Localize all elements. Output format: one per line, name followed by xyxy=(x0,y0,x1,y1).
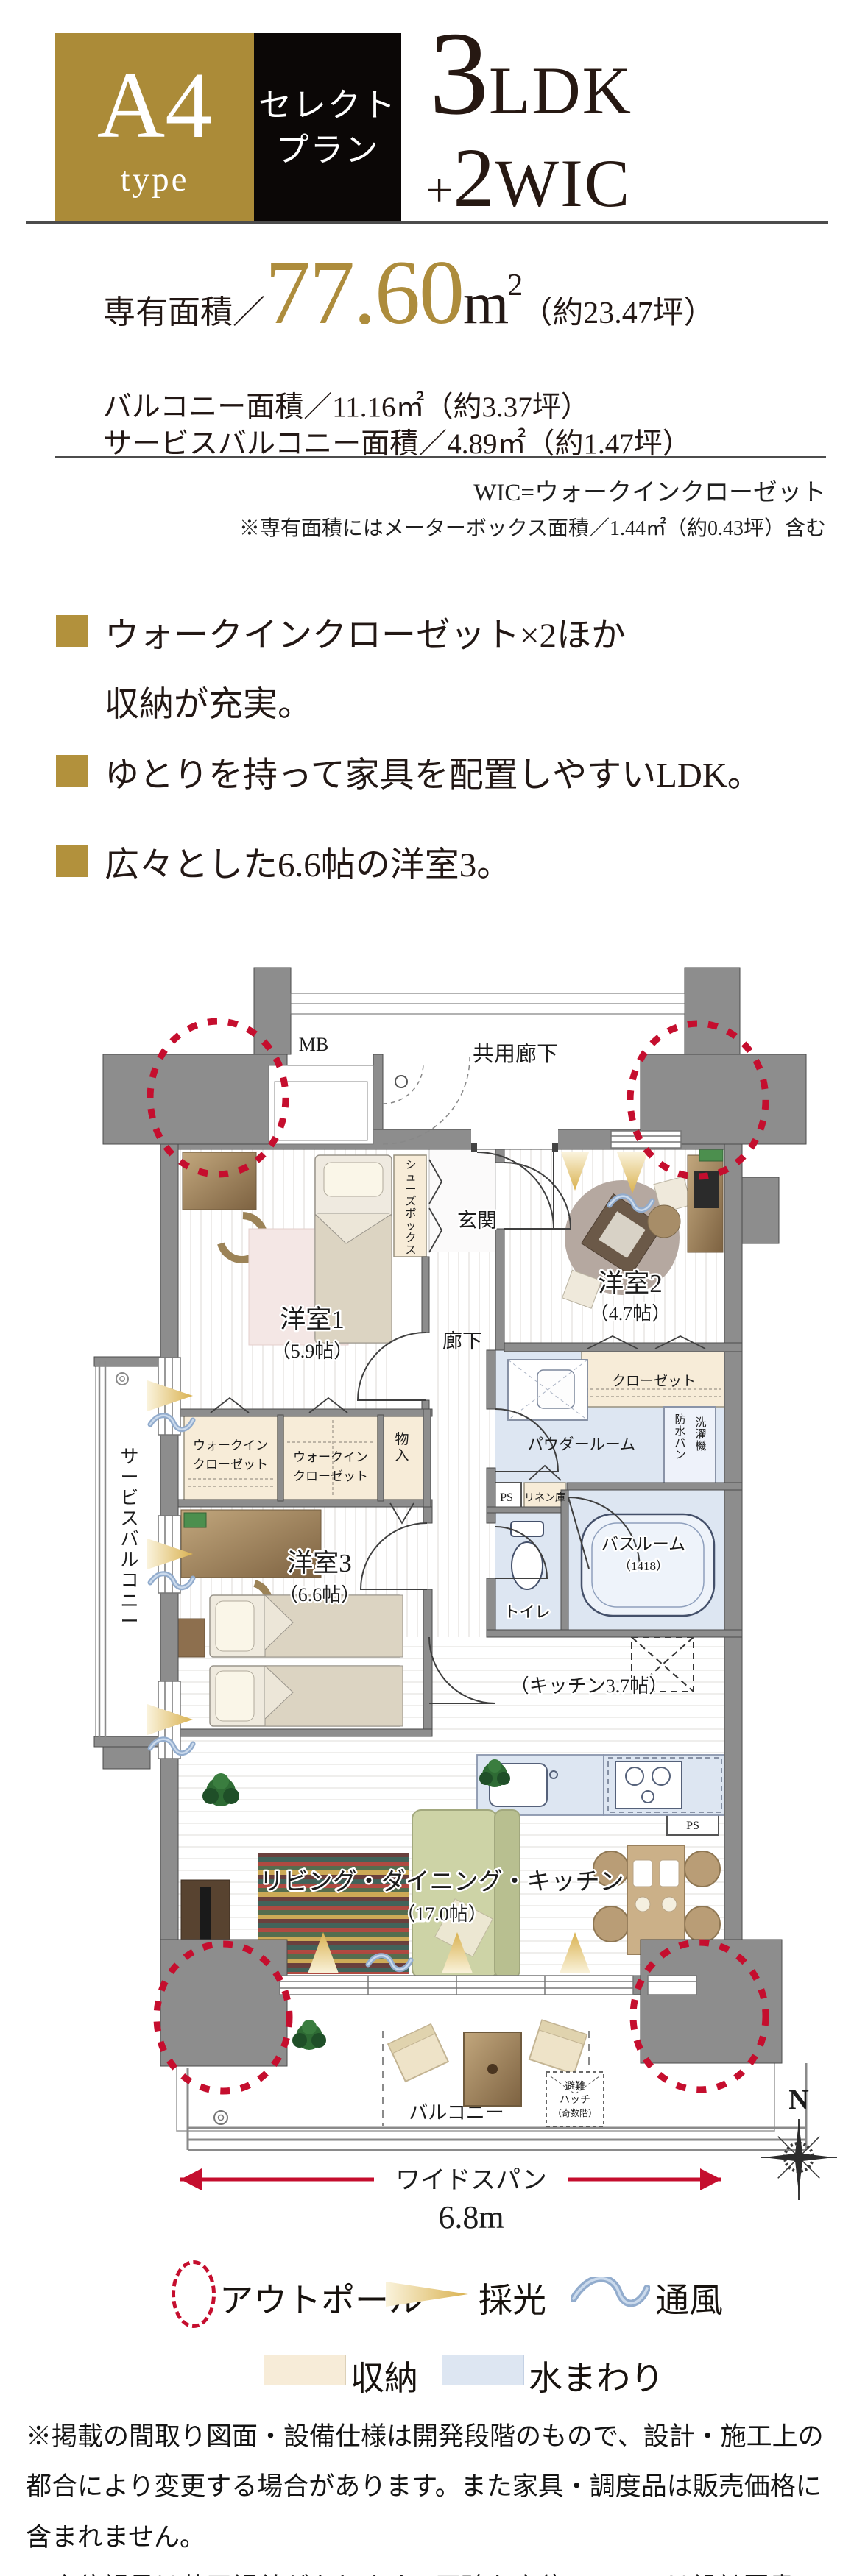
layout-wic: WIC xyxy=(495,149,631,217)
compass-n-label: N xyxy=(788,2084,808,2115)
room2-label: 洋室2 xyxy=(598,1269,663,1298)
hatch-label-1: 避難 xyxy=(565,2081,585,2093)
main-area-label: 専有面積／ xyxy=(103,285,265,333)
corridor-drain xyxy=(395,1076,407,1087)
main-area-line: 専有面積／ 77.60 m2 （約23.47坪） xyxy=(103,247,715,338)
closet-label: クローゼット xyxy=(612,1373,696,1389)
room3-size: （6.6帖） xyxy=(279,1584,361,1605)
feature2-line1: ゆとりを持って家具を配置しやすいLDK。 xyxy=(105,746,762,797)
footer-disclaimers: ※掲載の間取り図面・設備仕様は開発段階のもので、設計・施工上の都合により変更する… xyxy=(26,2412,837,2576)
divider-top xyxy=(26,221,828,224)
disclaimer-1: ※掲載の間取り図面・設備仕様は開発段階のもので、設計・施工上の都合により変更する… xyxy=(26,2412,837,2563)
feature1-line2: 収納が充実。 xyxy=(105,675,312,726)
layout-unit: LDK xyxy=(489,57,632,124)
disclaimer-2: ※方位記号は若干誤差があります。正確な方位については設計図書でご確認ください。 xyxy=(26,2563,837,2576)
layout-title-line2: +2WIC xyxy=(426,136,631,217)
main-area-unit: m2 xyxy=(463,268,521,338)
bathroom-size: （1418） xyxy=(618,1559,668,1573)
feature1-line1: ウォークインクローゼット×2ほか xyxy=(105,606,626,657)
wic2-label-1: ウォークイン xyxy=(293,1450,368,1464)
badge-line2: プラン xyxy=(275,134,379,167)
wic-note: WIC=ウォークインクローゼット xyxy=(473,472,826,508)
wic1-label-1: ウォークイン xyxy=(193,1438,268,1452)
wide-span-label: ワイドスパン xyxy=(395,2167,547,2194)
feature1-marker xyxy=(56,615,88,647)
wic1-label-2: クローゼット xyxy=(193,1458,268,1472)
kitchen-counter xyxy=(477,1755,724,1815)
balcony-label: バルコニー xyxy=(409,2102,504,2123)
corridor-label: 廊下 xyxy=(442,1330,482,1352)
toilet-fixture xyxy=(511,1522,543,1589)
type-suffix: type xyxy=(121,163,189,197)
room2-size: （4.7帖） xyxy=(590,1303,671,1324)
main-area-value: 77.60 xyxy=(265,247,463,338)
legend-outpole-icon xyxy=(172,2260,216,2328)
wide-span-value: 6.8m xyxy=(438,2199,504,2235)
bathroom-label: バスルーム xyxy=(601,1535,685,1553)
badge-line1: セレクト xyxy=(258,89,397,122)
layout-title-line1: 3LDK xyxy=(429,15,632,132)
room1-size: （5.9帖） xyxy=(272,1341,353,1362)
laundry-pan-box xyxy=(664,1407,716,1484)
mb-door-arc2 xyxy=(383,1063,423,1104)
legend-storage-swatch xyxy=(264,2355,346,2385)
legend-storage-label: 収納 xyxy=(350,2352,418,2400)
powder-room-label: パウダールーム xyxy=(528,1436,635,1453)
feature3-marker xyxy=(56,845,88,877)
legend-light-icon xyxy=(386,2279,470,2309)
ps-upper-label: PS xyxy=(500,1491,513,1504)
hatch-label-2: ハッチ xyxy=(560,2095,590,2106)
select-plan-badge: セレクト プラン xyxy=(254,33,401,222)
floorplan-brochure-page: A4 type セレクト プラン 3LDK +2WIC 専有面積／ 77.60 … xyxy=(0,0,854,2576)
feature3-line1: 広々とした6.6帖の洋室3。 xyxy=(105,836,511,887)
floor-plan: MB 共用廊下 玄関 シューズボックス 廊下 洋室1 （5.9帖） 洋室2 （4… xyxy=(0,934,854,2244)
divider-areas xyxy=(55,456,826,458)
common-corridor-label: 共用廊下 xyxy=(473,1042,558,1066)
hatch-label-3: （奇数階） xyxy=(553,2107,597,2118)
layout-number: 3 xyxy=(429,15,489,134)
ldk-label: リビング・ダイニング・キッチン xyxy=(260,1868,624,1895)
entrance-label: 玄関 xyxy=(457,1210,497,1232)
meter-box xyxy=(275,1082,367,1140)
legend-water-label: 水まわり xyxy=(529,2352,664,2400)
main-area-tsubo: （約23.47坪） xyxy=(521,288,715,333)
ps-kitchen-label: PS xyxy=(686,1820,699,1832)
layout-plus: + xyxy=(426,166,453,215)
room1-label: 洋室1 xyxy=(280,1305,345,1334)
balcony-area-line: バルコニー面積／11.16㎡（約3.37坪） xyxy=(103,384,590,425)
meter-box-note: ※専有面積にはメーターボックス面積／1.44㎡（約0.43坪）含む xyxy=(239,512,826,542)
type-label: A4 xyxy=(97,58,212,152)
service-balcony-label: サービスバルコニー xyxy=(120,1447,138,1632)
feature2-marker xyxy=(56,755,88,787)
legend-vent-label: 通風 xyxy=(655,2274,723,2322)
layout-wic-count: 2 xyxy=(453,136,495,220)
kitchen-label: （キッチン3.7帖） xyxy=(510,1675,668,1697)
laundry-label-col2: 防水パン xyxy=(674,1413,685,1461)
wic2-label-2: クローゼット xyxy=(293,1469,368,1483)
vanity xyxy=(508,1360,587,1420)
linen-label: リネン庫 xyxy=(524,1491,565,1504)
shoes-box-label: シューズボックス xyxy=(405,1160,416,1257)
type-badge: A4 type xyxy=(55,33,254,222)
toilet-label: トイレ xyxy=(504,1603,551,1621)
legend-water-swatch xyxy=(442,2355,524,2385)
legend-light-label: 採光 xyxy=(479,2274,546,2322)
room3-label: 洋室3 xyxy=(287,1549,352,1578)
mb-label: MB xyxy=(299,1034,328,1055)
ldk-size: （17.0帖） xyxy=(396,1903,487,1925)
legend-vent-icon xyxy=(571,2277,650,2313)
laundry-label-col1: 洗濯機 xyxy=(695,1416,706,1452)
